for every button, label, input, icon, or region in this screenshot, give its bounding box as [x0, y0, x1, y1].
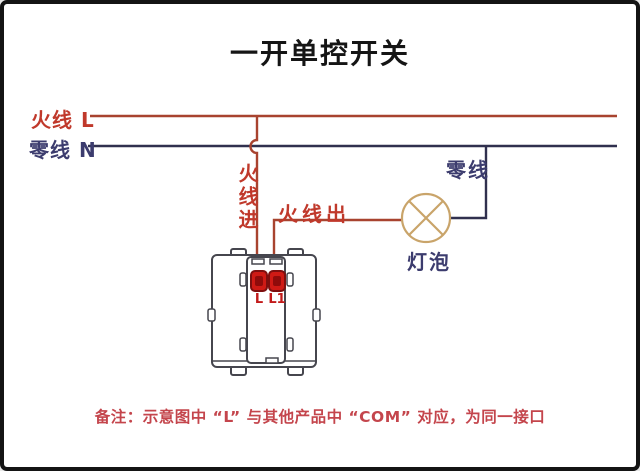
footnote: 备注：示意图中 “L” 与其他产品中 “COM” 对应，为同一接口: [4, 405, 636, 427]
terminal-l-inner: [255, 276, 263, 286]
switch-body: [208, 249, 320, 375]
switch-wire-slot-left: [252, 259, 264, 264]
live-wire-label: 火线 L: [31, 104, 95, 133]
switch-bottom-slot: [266, 358, 278, 363]
switch-clip-top-right: [287, 273, 293, 286]
live-out-label: 火线出: [278, 198, 350, 227]
switch-clip-top-left: [240, 273, 246, 286]
neutral-right-label: 零线: [446, 154, 490, 183]
terminal-l1-inner: [273, 276, 281, 286]
circuit-diagram: [4, 4, 640, 471]
switch-side-notch-right: [313, 309, 320, 321]
live-in-label: 火线进: [233, 163, 262, 232]
bulb-label: 灯泡: [407, 246, 451, 275]
neutral-wire-label: 零线 N: [29, 134, 97, 163]
switch-side-notch-left: [208, 309, 215, 321]
switch-wire-slot-right: [270, 259, 282, 264]
bulb-symbol: [402, 194, 450, 242]
terminal-l-label: L: [250, 292, 268, 307]
switch-clip-bottom-right: [287, 338, 293, 351]
wiring-diagram-page: 一开单控开关: [0, 0, 640, 471]
terminal-l1-label: L1: [267, 292, 287, 307]
switch-clip-bottom-left: [240, 338, 246, 351]
